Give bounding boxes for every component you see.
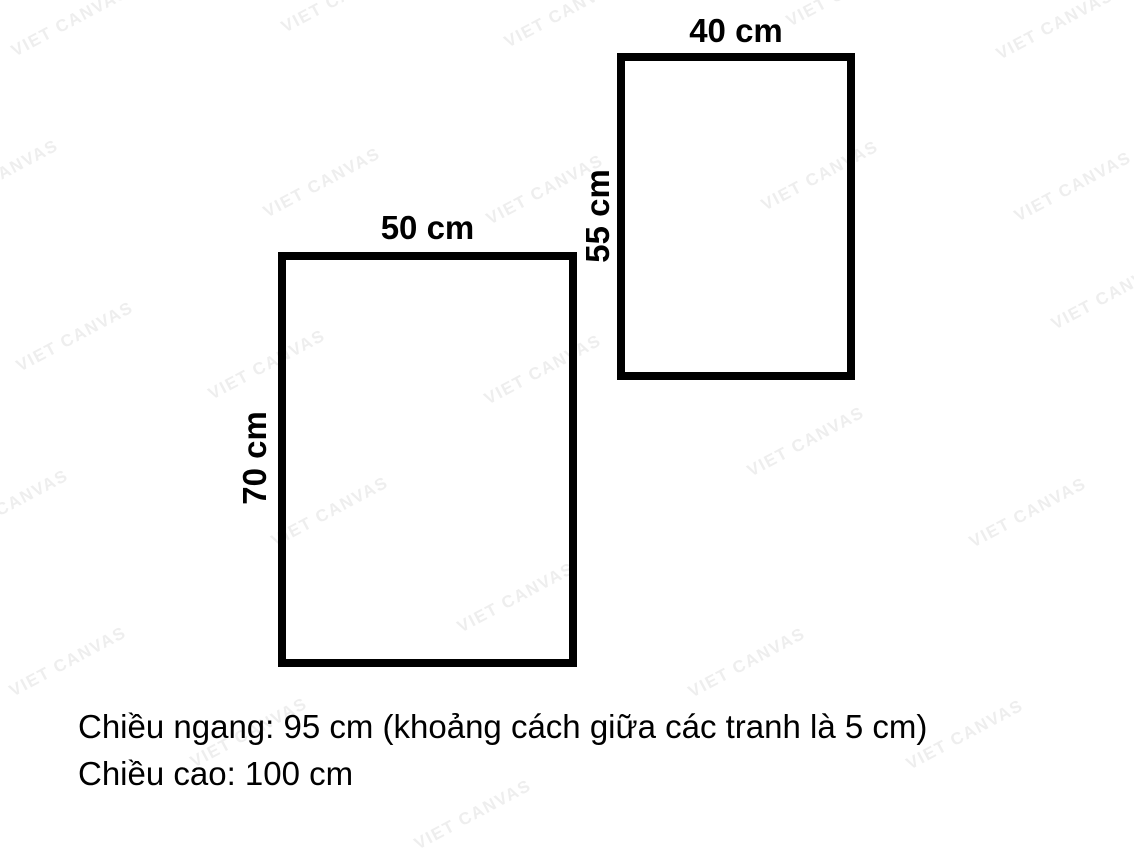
canvas-size-diagram: VIET CANVASVIET CANVASVIET CANVASVIET CA… [0,0,1134,850]
summary-width-line: Chiều ngang: 95 cm (khoảng cách giữa các… [78,703,927,750]
viet-canvas-watermark: VIET CANVAS [501,0,625,52]
viet-canvas-watermark: VIET CANVAS [1011,148,1134,226]
panel-outline-40x55 [617,53,855,380]
dimension-summary: Chiều ngang: 95 cm (khoảng cách giữa các… [78,703,927,797]
viet-canvas-watermark: VIET CANVAS [6,623,130,701]
viet-canvas-watermark: VIET CANVAS [966,474,1090,552]
left-panel-height-label: 70 cm [236,411,274,505]
right-panel-width-label: 40 cm [617,12,855,50]
viet-canvas-watermark: VIET CANVAS [1048,256,1134,334]
right-panel-height-label: 55 cm [579,169,617,263]
left-panel-width-label: 50 cm [278,209,577,247]
viet-canvas-watermark: VIET CANVAS [993,0,1117,64]
viet-canvas-watermark: VIET CANVAS [685,624,809,702]
viet-canvas-watermark: VIET CANVAS [13,298,137,376]
viet-canvas-watermark: VIET CANVAS [0,466,72,544]
viet-canvas-watermark: VIET CANVAS [278,0,402,37]
viet-canvas-watermark: VIET CANVAS [744,403,868,481]
panel-outline-50x70 [278,252,577,667]
summary-height-line: Chiều cao: 100 cm [78,750,927,797]
viet-canvas-watermark: VIET CANVAS [0,136,62,214]
viet-canvas-watermark: VIET CANVAS [8,0,132,61]
